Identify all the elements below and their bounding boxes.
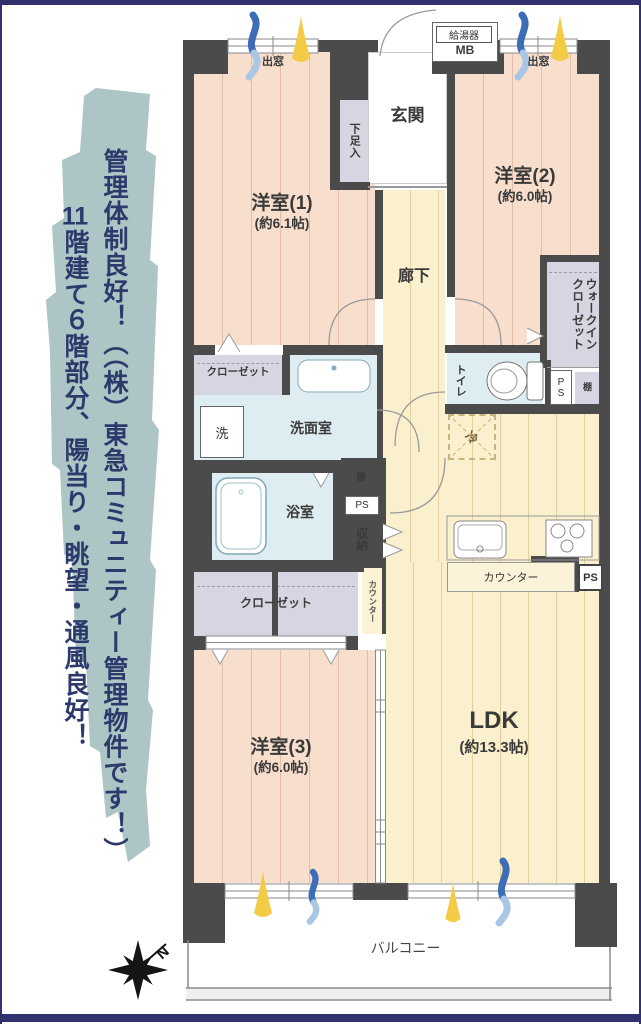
wall-segment [540, 262, 547, 368]
ad-text-floor-number: 11 [61, 204, 89, 229]
closet2-label: クローゼット [206, 597, 346, 610]
fridge-label: 冷 [462, 427, 483, 448]
wall-segment [183, 883, 225, 943]
closet1-hanger-line [197, 363, 279, 364]
corridor-floor [383, 190, 445, 562]
wall-segment [330, 52, 340, 182]
wall-segment [183, 40, 228, 74]
side-counter-label: カウンター [362, 570, 382, 632]
wall-segment [194, 460, 344, 473]
wall-segment [353, 883, 408, 900]
ldk-window-icon [408, 881, 575, 901]
wall-segment [340, 52, 368, 100]
shelf-right-label: 棚 [575, 382, 600, 392]
wall-segment [183, 40, 194, 943]
frame-top [0, 0, 641, 5]
wic-label: ウォークイン クローゼット [549, 266, 597, 362]
room3-ldk-sliding-door [375, 650, 386, 883]
wall-segment [183, 345, 215, 355]
wall-segment [575, 883, 617, 947]
ps-bath-box: PS [345, 496, 379, 515]
ps-toilet-box: PS [550, 370, 572, 405]
wall-segment [445, 345, 545, 353]
room3-name: 洋室(3) [199, 737, 363, 758]
bay-window-left-label: 出窓 [233, 56, 313, 68]
ad-text-line2: 11階建て６階部分、陽当り・眺望・通風良好！ [62, 204, 87, 749]
ps-kitchen-label: PS [583, 572, 598, 584]
fridge-space: 冷 [448, 414, 496, 460]
room1-name: 洋室(1) [202, 193, 362, 214]
wic-label-line1: ウォークイン [584, 266, 597, 362]
wall-segment [447, 52, 455, 297]
ad-text-line1: 管理体制良好！（（株）東急コミュニティー管理物件です！） [101, 148, 126, 864]
frame-left [0, 0, 2, 1024]
kitchen-counter-box: カウンター [447, 562, 575, 592]
room2-name: 洋室(2) [455, 166, 595, 187]
wall-segment [377, 355, 383, 458]
wall-segment [599, 40, 610, 885]
wall-segment [194, 560, 364, 572]
ad-text-line2-rest: 階建て６階部分、陽当り・眺望・通風良好！ [61, 229, 89, 749]
closet1-label: クローゼット [195, 367, 281, 379]
ldk-floor [445, 412, 599, 883]
room1-size: (約6.1帖) [202, 216, 362, 231]
wic-label-line2: クローゼット [570, 266, 583, 362]
entrance-step-line [368, 186, 447, 188]
wall-segment [358, 560, 386, 568]
water-heater-label: 給湯器 [449, 27, 479, 42]
wall-segment [540, 255, 599, 262]
toilet-label: トイレ [451, 355, 469, 405]
wall-segment [194, 636, 206, 650]
compass-icon: N [108, 940, 173, 1000]
sunlight-icon [445, 883, 460, 922]
ps-toilet-label: PS [556, 377, 567, 399]
ldk-name: LDK [412, 708, 576, 735]
wall-segment [330, 182, 370, 190]
wall-segment [283, 345, 383, 355]
compass-north-label: N [153, 943, 172, 963]
meter-box-label: MB [432, 44, 498, 57]
storage-label: 収納 [346, 520, 376, 558]
bay-window-right-label: 出窓 [500, 56, 577, 68]
floorplan-canvas: 管理体制良好！（（株）東急コミュニティー管理物件です！） 11階建て６階部分、陽… [0, 0, 641, 1024]
wall-segment [318, 40, 378, 52]
entrance-label: 玄関 [368, 106, 447, 125]
closet2-door [206, 636, 346, 649]
room3-window-icon [225, 881, 353, 901]
wall-segment [346, 636, 358, 650]
wall-segment [445, 404, 599, 414]
room2-size: (約6.0帖) [455, 189, 595, 204]
washer-label: 洗 [215, 423, 228, 442]
wall-segment [375, 190, 383, 299]
ps-kitchen-box: PS [578, 564, 603, 591]
ps-bath-label: PS [355, 500, 368, 511]
ldk-size: (約13.3帖) [412, 740, 576, 757]
wall-segment [432, 60, 500, 74]
wall-segment [194, 473, 212, 560]
shoe-cabinet-label: 下足入 [341, 102, 367, 180]
frame-bottom [0, 1014, 641, 1022]
entrance-door-arc [380, 10, 436, 56]
wall-segment [282, 355, 290, 395]
washroom-label: 洗面室 [269, 421, 353, 437]
room3-size: (約6.0帖) [199, 760, 363, 775]
corridor-label: 廊下 [384, 268, 444, 286]
wic-bottom-line [547, 367, 599, 368]
water-heater-box: 給湯器 [436, 26, 492, 43]
kitchen-counter-label: カウンター [484, 569, 539, 585]
bathroom-label: 浴室 [268, 505, 332, 521]
balcony-label: バルコニー [338, 941, 473, 957]
washer-box: 洗 [200, 406, 244, 458]
shelf-left-label: 棚 [345, 472, 377, 482]
wall-segment [382, 568, 386, 634]
